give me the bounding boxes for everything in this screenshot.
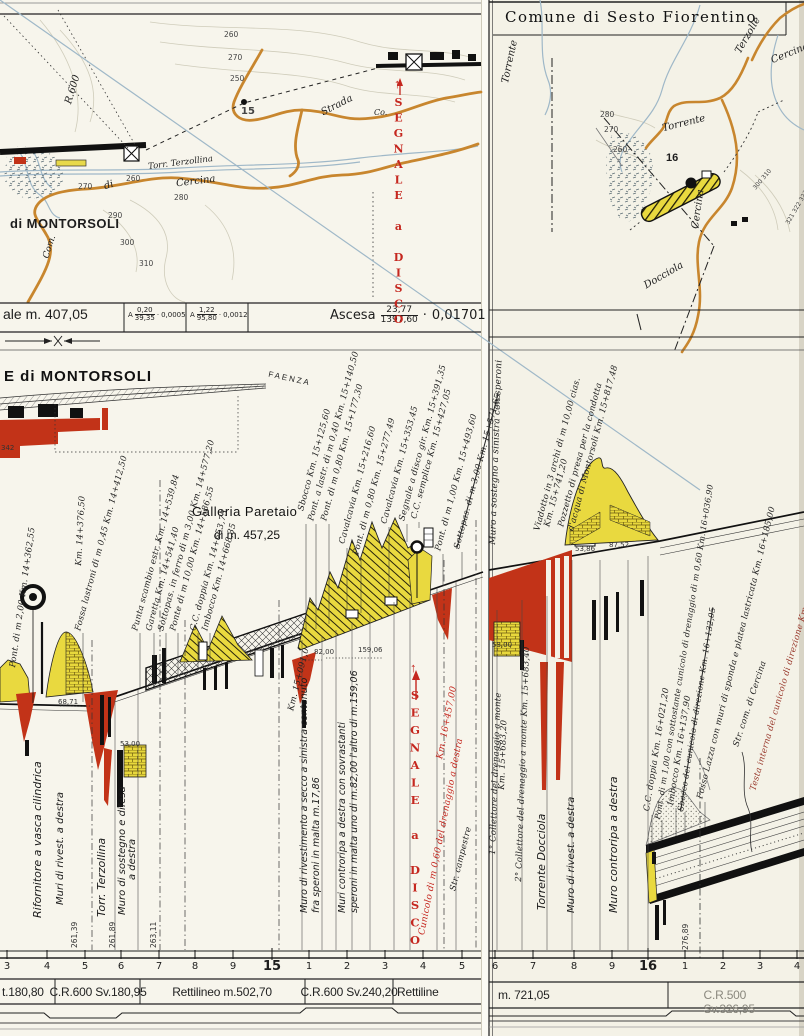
measure-label: 68,71 [58,698,78,706]
wall-label: Rifornitore a vasca cilindrica [31,761,44,918]
contour-label: 260 [224,30,238,39]
wall-label: Muri controripa a destra con sovrastanti [337,722,348,913]
wall-label: Muro di rivestimento a secco a sinistra … [299,678,310,913]
wall-label: Torrente Docciola [535,814,548,910]
ascesa-label: Ascesa 23,771397,60 ·0,01701 [330,306,486,326]
hectometer-number: 8 [192,961,198,972]
hectometer-number: 2 [344,961,350,972]
alignment-segment: Rettiline [397,985,439,999]
contour-label: 310 [139,259,153,268]
grade-left-label: ale m. 407,05 [3,306,88,322]
signal-arrow-icon: ↑ [394,76,401,91]
kilometer-number-16: 16 [639,959,657,974]
grade-frac-1: A 0,2039,35 ·0,0005 [128,307,186,323]
alignment-segment: C.R.600 Sv.180,95 [49,985,146,999]
alignment-segment: C.R.500 Sv.326,95 [704,988,771,1016]
segnale-a-disco-bottom: SEGNALE a DISCO [408,688,422,951]
contour-label: 280 [600,110,614,119]
contour-label: 300 [120,238,134,247]
hectometer-number: 6 [492,961,498,972]
hectometer-number: 3 [4,961,10,972]
kilometer-number-15: 15 [263,959,281,974]
wall-label: a destra [127,839,138,880]
alignment-segment: t.180,80 [2,985,44,999]
hectometer-number: 7 [156,961,162,972]
distance-figure: 276,89 [681,924,690,950]
hectometer-number: 4 [420,961,426,972]
contour-label: 250 [230,74,244,83]
hectometer-number: 8 [571,961,577,972]
hectometer-number: 5 [82,961,88,972]
contour-label: 270 [78,182,92,191]
map-label-co: Co. [374,108,387,117]
km-marker-16: 16 [666,152,678,164]
distance-figure: 263,11 [149,922,158,948]
km-marker-15: 15 [241,106,255,117]
comune-title: Comune di Sesto Fiorentino [505,8,757,26]
contour-label: 270 [604,125,618,134]
hectometer-number: 6 [118,961,124,972]
place-label-montorsoli: di MONTORSOLI [10,216,120,231]
contour-label: 260 [613,145,627,154]
contour-label: 260 [126,174,140,183]
measure-label: 87,52 [609,541,629,549]
hectometer-number: 5 [459,961,465,972]
hectometer-number: 7 [530,961,536,972]
hectometer-number: 3 [382,961,388,972]
measure-label: 159,06 [358,646,383,654]
measure-label: 53,00 [120,740,140,748]
hectometer-number: 1 [682,961,688,972]
contour-label: 280 [174,193,188,202]
signal-arrow-icon: ↑ [410,660,417,675]
profile-sheet: { "header": {"title": "Comune di Sesto F… [0,0,804,1036]
hectometer-number: 4 [794,961,800,972]
hectometer-number: 1 [306,961,312,972]
distance-figure: 261,89 [108,922,117,948]
measure-label: 53,86 [575,545,595,553]
contour-label: 270 [228,53,242,62]
station-label: E di MONTORSOLI [4,368,152,385]
wall-label: Muro controripa a destra [607,776,620,913]
hectometer-number: 4 [44,961,50,972]
hectometer-number: 9 [230,961,236,972]
hectometer-number: 9 [609,961,615,972]
hectometer-number: 2 [720,961,726,972]
alignment-segment: C.R.600 Sv.240,20 [300,985,397,999]
measure-label: 82,00 [314,648,334,656]
alignment-segment: m. 721,05 [498,988,550,1002]
wall-label: Torr. Terzollina [95,838,108,917]
wall-label: Muro di rivest. a destra [566,797,577,913]
elevation-342: 342 [1,444,14,452]
wall-label: fra speroni in malta m.17,86 [311,777,322,913]
measure-label: 53,00 [492,641,512,649]
segnale-a-disco-top: SEGNALE a DISCO [392,96,405,329]
wall-label: speroni in malta uno di m.82,00 l'altro … [349,670,360,913]
grade-frac-2: A 1,2295,80 ·0,0012 [190,307,248,323]
distance-figure: 261,39 [70,922,79,948]
wall-label: Muri di rivest. a destra [55,792,66,905]
hectometer-number: 3 [757,961,763,972]
alignment-segment: Rettilineo m.502,70 [172,985,272,999]
